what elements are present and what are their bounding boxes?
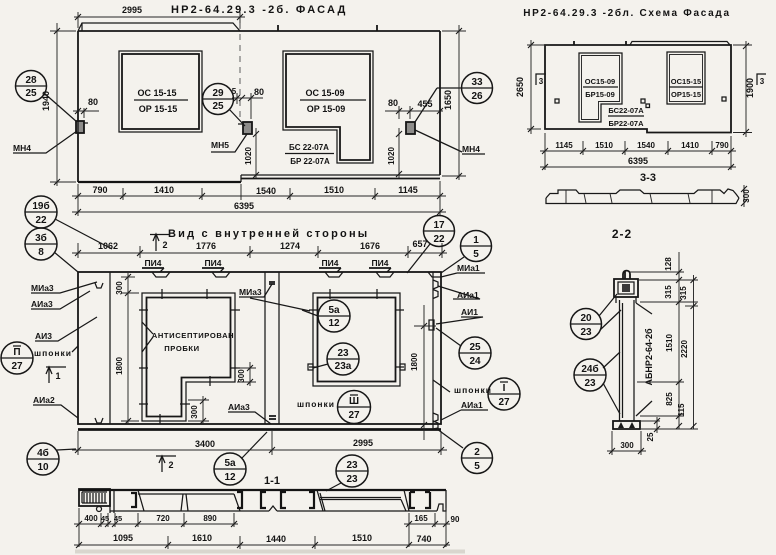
svg-text:1800: 1800 bbox=[115, 357, 124, 375]
svg-text:МН4: МН4 bbox=[462, 144, 480, 154]
svg-text:5а: 5а bbox=[328, 305, 340, 316]
svg-text:22: 22 bbox=[35, 215, 47, 226]
svg-text:2220: 2220 bbox=[680, 340, 689, 358]
svg-text:315: 315 bbox=[679, 286, 688, 300]
svg-text:2: 2 bbox=[162, 240, 167, 250]
svg-text:1440: 1440 bbox=[266, 534, 286, 544]
svg-text:2995: 2995 bbox=[122, 5, 142, 15]
svg-text:ПИ4: ПИ4 bbox=[372, 258, 389, 268]
svg-text:825: 825 bbox=[665, 392, 674, 406]
svg-text:400: 400 bbox=[84, 514, 98, 523]
svg-text:1410: 1410 bbox=[154, 185, 174, 195]
svg-text:АИа3: АИа3 bbox=[228, 402, 250, 412]
svg-text:БС22-07А: БС22-07А bbox=[608, 106, 644, 115]
svg-text:27: 27 bbox=[11, 361, 23, 372]
svg-text:П: П bbox=[13, 347, 20, 358]
svg-text:1274: 1274 bbox=[280, 241, 300, 251]
svg-text:1900: 1900 bbox=[745, 78, 755, 98]
svg-text:1650: 1650 bbox=[443, 90, 453, 110]
svg-text:1410: 1410 bbox=[681, 141, 699, 150]
svg-text:12: 12 bbox=[328, 318, 340, 329]
svg-text:АНТИСЕПТИРОВАН: АНТИСЕПТИРОВАН bbox=[152, 331, 235, 340]
svg-text:128: 128 bbox=[664, 257, 673, 271]
svg-text:1020: 1020 bbox=[387, 147, 396, 165]
svg-text:45: 45 bbox=[101, 514, 109, 523]
svg-text:ПИ4: ПИ4 bbox=[145, 258, 162, 268]
svg-text:19б: 19б bbox=[32, 200, 49, 212]
svg-text:24б: 24б bbox=[581, 363, 598, 375]
svg-text:23: 23 bbox=[337, 348, 349, 359]
svg-text:1: 1 bbox=[55, 371, 60, 381]
svg-text:6395: 6395 bbox=[234, 201, 254, 211]
svg-text:ПРОБКИ: ПРОБКИ bbox=[164, 344, 199, 353]
svg-text:29: 29 bbox=[212, 88, 224, 99]
svg-text:АИ3: АИ3 bbox=[35, 331, 52, 341]
svg-text:МИа1: МИа1 bbox=[457, 263, 480, 273]
svg-text:33: 33 bbox=[471, 77, 483, 88]
svg-text:3: 3 bbox=[760, 77, 765, 86]
svg-text:300: 300 bbox=[742, 189, 751, 203]
svg-text:23: 23 bbox=[580, 327, 592, 338]
svg-text:23: 23 bbox=[584, 378, 596, 389]
svg-text:3-3: 3-3 bbox=[640, 172, 656, 184]
svg-text:1676: 1676 bbox=[360, 241, 380, 251]
svg-text:2995: 2995 bbox=[353, 438, 373, 448]
svg-text:ОС15-09: ОС15-09 bbox=[585, 77, 615, 86]
svg-text:1540: 1540 bbox=[637, 141, 655, 150]
svg-text:27: 27 bbox=[348, 410, 360, 421]
svg-text:АБНР2-64-2б: АБНР2-64-2б bbox=[644, 328, 654, 385]
svg-text:300: 300 bbox=[620, 441, 634, 450]
svg-text:2: 2 bbox=[474, 447, 480, 458]
svg-text:ОС 15-15: ОС 15-15 bbox=[137, 88, 176, 98]
svg-text:Ш: Ш bbox=[349, 396, 359, 407]
svg-text:1510: 1510 bbox=[595, 141, 613, 150]
svg-text:1-1: 1-1 bbox=[264, 475, 280, 487]
svg-text:1800: 1800 bbox=[410, 353, 419, 371]
svg-text:26: 26 bbox=[471, 91, 483, 102]
svg-text:МН4: МН4 bbox=[13, 143, 31, 153]
svg-text:1510: 1510 bbox=[324, 185, 344, 195]
svg-text:1020: 1020 bbox=[244, 147, 253, 165]
svg-text:790: 790 bbox=[92, 185, 107, 195]
svg-text:22: 22 bbox=[433, 234, 445, 245]
svg-text:5: 5 bbox=[474, 461, 480, 472]
svg-text:8: 8 bbox=[38, 247, 44, 258]
svg-text:23: 23 bbox=[346, 474, 358, 485]
svg-text:740: 740 bbox=[416, 534, 431, 544]
svg-text:Вид с внутренней стороны: Вид с внутренней стороны bbox=[168, 228, 369, 240]
svg-text:МИа3: МИа3 bbox=[31, 283, 54, 293]
svg-text:300: 300 bbox=[190, 405, 199, 419]
svg-text:БР15-09: БР15-09 bbox=[585, 90, 615, 99]
svg-text:шпонки: шпонки bbox=[454, 385, 492, 395]
svg-text:12: 12 bbox=[224, 472, 236, 483]
svg-text:3400: 3400 bbox=[195, 439, 215, 449]
svg-text:165: 165 bbox=[414, 514, 428, 523]
svg-text:МИа3: МИа3 bbox=[239, 287, 262, 297]
svg-text:ОР 15-15: ОР 15-15 bbox=[139, 104, 178, 114]
svg-text:24: 24 bbox=[469, 356, 481, 367]
svg-text:ПИ4: ПИ4 bbox=[205, 258, 222, 268]
svg-text:3: 3 bbox=[539, 77, 544, 86]
svg-text:25: 25 bbox=[469, 342, 481, 353]
svg-text:ОС15-15: ОС15-15 bbox=[671, 77, 701, 86]
svg-text:115: 115 bbox=[677, 403, 686, 416]
svg-text:АИа3: АИа3 bbox=[31, 299, 53, 309]
svg-text:2-2: 2-2 bbox=[612, 227, 632, 241]
svg-text:ОС 15-09: ОС 15-09 bbox=[305, 88, 344, 98]
svg-text:300: 300 bbox=[237, 369, 246, 383]
svg-text:шпонки: шпонки bbox=[34, 348, 72, 358]
svg-text:17: 17 bbox=[433, 220, 445, 231]
svg-text:АИа1: АИа1 bbox=[461, 400, 483, 410]
svg-text:657: 657 bbox=[412, 239, 427, 249]
svg-text:3б: 3б bbox=[35, 232, 47, 244]
svg-text:720: 720 bbox=[156, 514, 170, 523]
svg-text:4б: 4б bbox=[37, 447, 49, 459]
svg-text:25: 25 bbox=[646, 432, 655, 441]
svg-text:шпонки: шпонки bbox=[297, 399, 335, 409]
svg-text:25: 25 bbox=[212, 101, 224, 112]
svg-text:НР2-64.29.3 -2б. ФАСАД: НР2-64.29.3 -2б. ФАСАД bbox=[171, 4, 348, 16]
svg-text:I: I bbox=[503, 383, 506, 394]
svg-text:1145: 1145 bbox=[398, 185, 418, 195]
svg-text:БР 22-07А: БР 22-07А bbox=[290, 157, 330, 166]
svg-text:45: 45 bbox=[114, 514, 122, 523]
svg-text:2: 2 bbox=[168, 460, 173, 470]
svg-text:1510: 1510 bbox=[352, 533, 372, 543]
svg-text:НР2-64.29.3 -2бл. Схема Фасада: НР2-64.29.3 -2бл. Схема Фасада bbox=[523, 7, 730, 19]
svg-text:1610: 1610 bbox=[192, 533, 212, 543]
svg-text:790: 790 bbox=[715, 141, 729, 150]
svg-text:80: 80 bbox=[388, 98, 398, 108]
svg-text:315: 315 bbox=[664, 285, 673, 299]
svg-text:2650: 2650 bbox=[515, 77, 525, 97]
svg-text:300: 300 bbox=[115, 281, 124, 295]
svg-text:6395: 6395 bbox=[628, 156, 648, 166]
svg-text:АИа2: АИа2 bbox=[33, 395, 55, 405]
svg-text:1: 1 bbox=[473, 235, 479, 246]
svg-text:890: 890 bbox=[203, 514, 217, 523]
svg-text:5: 5 bbox=[473, 249, 479, 260]
svg-text:БС 22-07А: БС 22-07А bbox=[289, 143, 329, 152]
svg-text:23: 23 bbox=[346, 460, 358, 471]
svg-text:27: 27 bbox=[498, 397, 510, 408]
svg-text:23а: 23а bbox=[335, 361, 352, 372]
svg-text:1940: 1940 bbox=[41, 91, 51, 111]
svg-text:20: 20 bbox=[580, 313, 592, 324]
svg-text:1776: 1776 bbox=[196, 241, 216, 251]
svg-text:1095: 1095 bbox=[113, 533, 133, 543]
svg-text:80: 80 bbox=[88, 97, 98, 107]
svg-text:90: 90 bbox=[451, 515, 460, 524]
svg-text:БР22-07А: БР22-07А bbox=[609, 119, 645, 128]
svg-text:АИ1: АИ1 bbox=[461, 307, 478, 317]
svg-text:10: 10 bbox=[37, 462, 49, 473]
svg-text:1540: 1540 bbox=[256, 186, 276, 196]
svg-text:80: 80 bbox=[254, 87, 264, 97]
svg-text:ПИ4: ПИ4 bbox=[322, 258, 339, 268]
svg-text:25: 25 bbox=[25, 88, 37, 99]
svg-text:ОР 15-09: ОР 15-09 bbox=[307, 104, 346, 114]
svg-text:МН5: МН5 bbox=[211, 140, 229, 150]
svg-text:ОР15-15: ОР15-15 bbox=[671, 90, 701, 99]
svg-text:28: 28 bbox=[25, 75, 37, 86]
svg-text:1510: 1510 bbox=[665, 334, 674, 352]
svg-text:1145: 1145 bbox=[555, 141, 573, 150]
svg-text:5а: 5а bbox=[224, 458, 236, 469]
